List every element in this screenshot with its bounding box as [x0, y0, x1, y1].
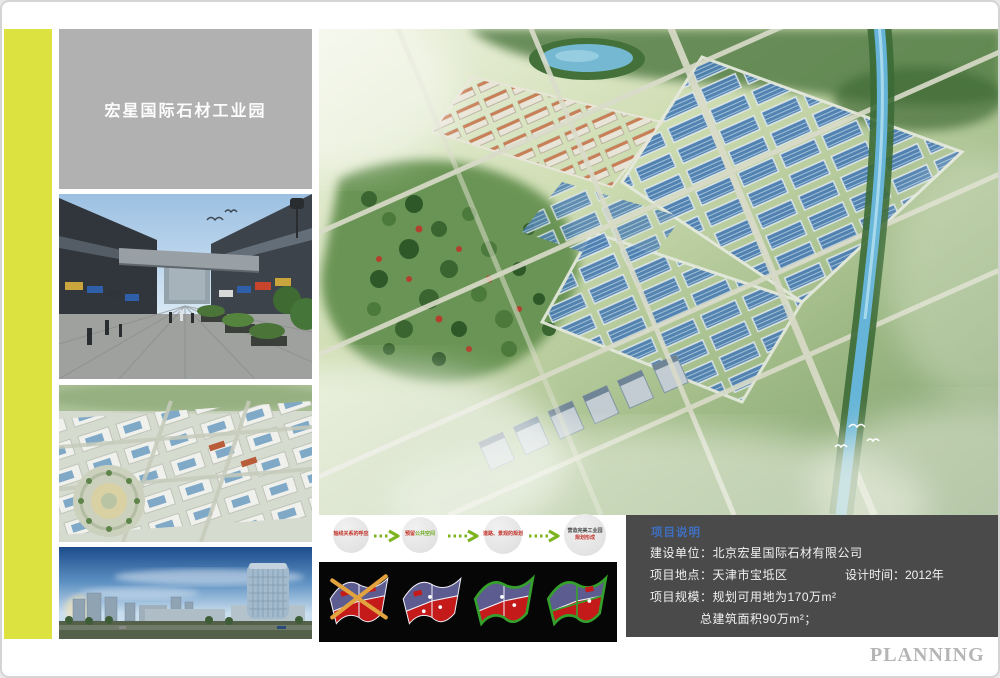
- flow-step-1: 轴线关系的呼应: [333, 517, 369, 553]
- info-box-title: 项目说明: [651, 524, 701, 540]
- flow-step-2: 预留公共空间: [402, 517, 438, 553]
- flow-step-4: 营造完美工业园 规划形成: [564, 514, 606, 556]
- presentation-board: 宏星国际石材工业园: [0, 0, 1000, 678]
- flow-arrow-icon: [446, 529, 480, 543]
- flow-step-3: 道路、景观的规划: [484, 516, 522, 554]
- concept-diagram-final: [544, 566, 610, 638]
- master-plan-rendering: [319, 29, 1000, 515]
- concept-diagram-nodes: [399, 566, 465, 638]
- concept-diagram-strip: [319, 562, 617, 642]
- flow-arrow-icon: [527, 529, 561, 543]
- flow-step-1-label: 轴线关系的呼应: [333, 531, 368, 539]
- planning-watermark: PLANNING: [870, 644, 990, 667]
- flow-step-4-line1: 营造完美工业园: [567, 528, 602, 536]
- info-row-location: 项目地点：天津市宝坻区: [650, 566, 788, 583]
- street-view-illustration: [59, 194, 312, 379]
- flow-arrow-icon: [372, 529, 400, 543]
- page-title: 宏星国际石材工业园: [104, 97, 266, 121]
- tower-panorama-photo: [59, 547, 312, 639]
- info-row-floor-area: 总建筑面积90万m²；: [700, 610, 817, 627]
- project-info-box: 项目说明 建设单位：北京宏星国际石材有限公司 项目地点：天津市宝坻区 设计时间：…: [626, 515, 1000, 637]
- flow-step-2-label: 预留公共空间: [405, 531, 435, 539]
- campus-aerial-illustration: [59, 385, 312, 542]
- tower-panorama-illustration: [59, 547, 312, 639]
- info-row-design-time: 设计时间：2012年: [845, 566, 944, 583]
- street-view-photo: [59, 194, 312, 379]
- title-block: 宏星国际石材工业园: [59, 29, 312, 189]
- info-row-client: 建设单位：北京宏星国际石材有限公司: [650, 544, 863, 561]
- concept-diagram-roads: [471, 566, 537, 638]
- campus-aerial-photo: [59, 385, 312, 542]
- flow-step-4-line2: 规划形成: [575, 535, 595, 543]
- accent-stripe: [4, 29, 52, 639]
- flow-step-3-label: 道路、景观的规划: [483, 531, 523, 539]
- master-plan-illustration: [319, 29, 1000, 515]
- info-row-scale: 项目规模：规划可用地为170万m²: [650, 588, 837, 605]
- concept-diagram-axes: [326, 566, 392, 638]
